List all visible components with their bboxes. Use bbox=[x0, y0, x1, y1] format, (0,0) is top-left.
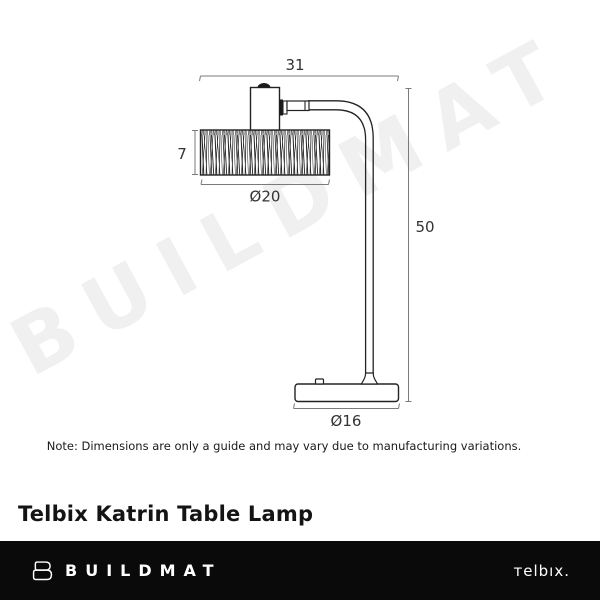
dim-height-label: 50 bbox=[415, 218, 434, 236]
product-dimension-page: BUILDMAT bbox=[0, 0, 600, 600]
lamp-shade bbox=[201, 130, 330, 175]
lamp-head bbox=[251, 88, 280, 131]
page-title: Telbix Katrin Table Lamp bbox=[18, 502, 313, 526]
dim-width-label: 31 bbox=[285, 56, 304, 74]
lamp-knob bbox=[258, 83, 271, 88]
lamp-dimension-diagram: 31 7 Ø20 50 Ø16 bbox=[0, 0, 600, 470]
lamp-stem-foot bbox=[362, 373, 378, 384]
telbix-logo: тelbıx. bbox=[514, 562, 570, 580]
lamp-rod bbox=[287, 101, 309, 111]
lamp-rod-holder bbox=[283, 101, 287, 114]
dim-shade-height-label: 7 bbox=[177, 145, 187, 163]
lamp-drawing bbox=[201, 83, 399, 402]
buildmat-icon bbox=[30, 558, 55, 584]
lamp-switch bbox=[316, 379, 324, 384]
dimension-labels: 31 7 Ø20 50 Ø16 bbox=[177, 56, 434, 430]
buildmat-logo: BUILDMAT bbox=[30, 558, 222, 584]
dim-base-diameter-label: Ø16 bbox=[331, 412, 362, 430]
dimension-lines bbox=[192, 76, 412, 409]
dimensions-note: Note: Dimensions are only a guide and ma… bbox=[0, 439, 568, 453]
lamp-base bbox=[295, 384, 399, 402]
footer-bar: BUILDMAT тelbıx. bbox=[0, 541, 600, 600]
dim-shade-diameter-label: Ø20 bbox=[250, 188, 281, 206]
buildmat-logo-text: BUILDMAT bbox=[65, 561, 222, 580]
